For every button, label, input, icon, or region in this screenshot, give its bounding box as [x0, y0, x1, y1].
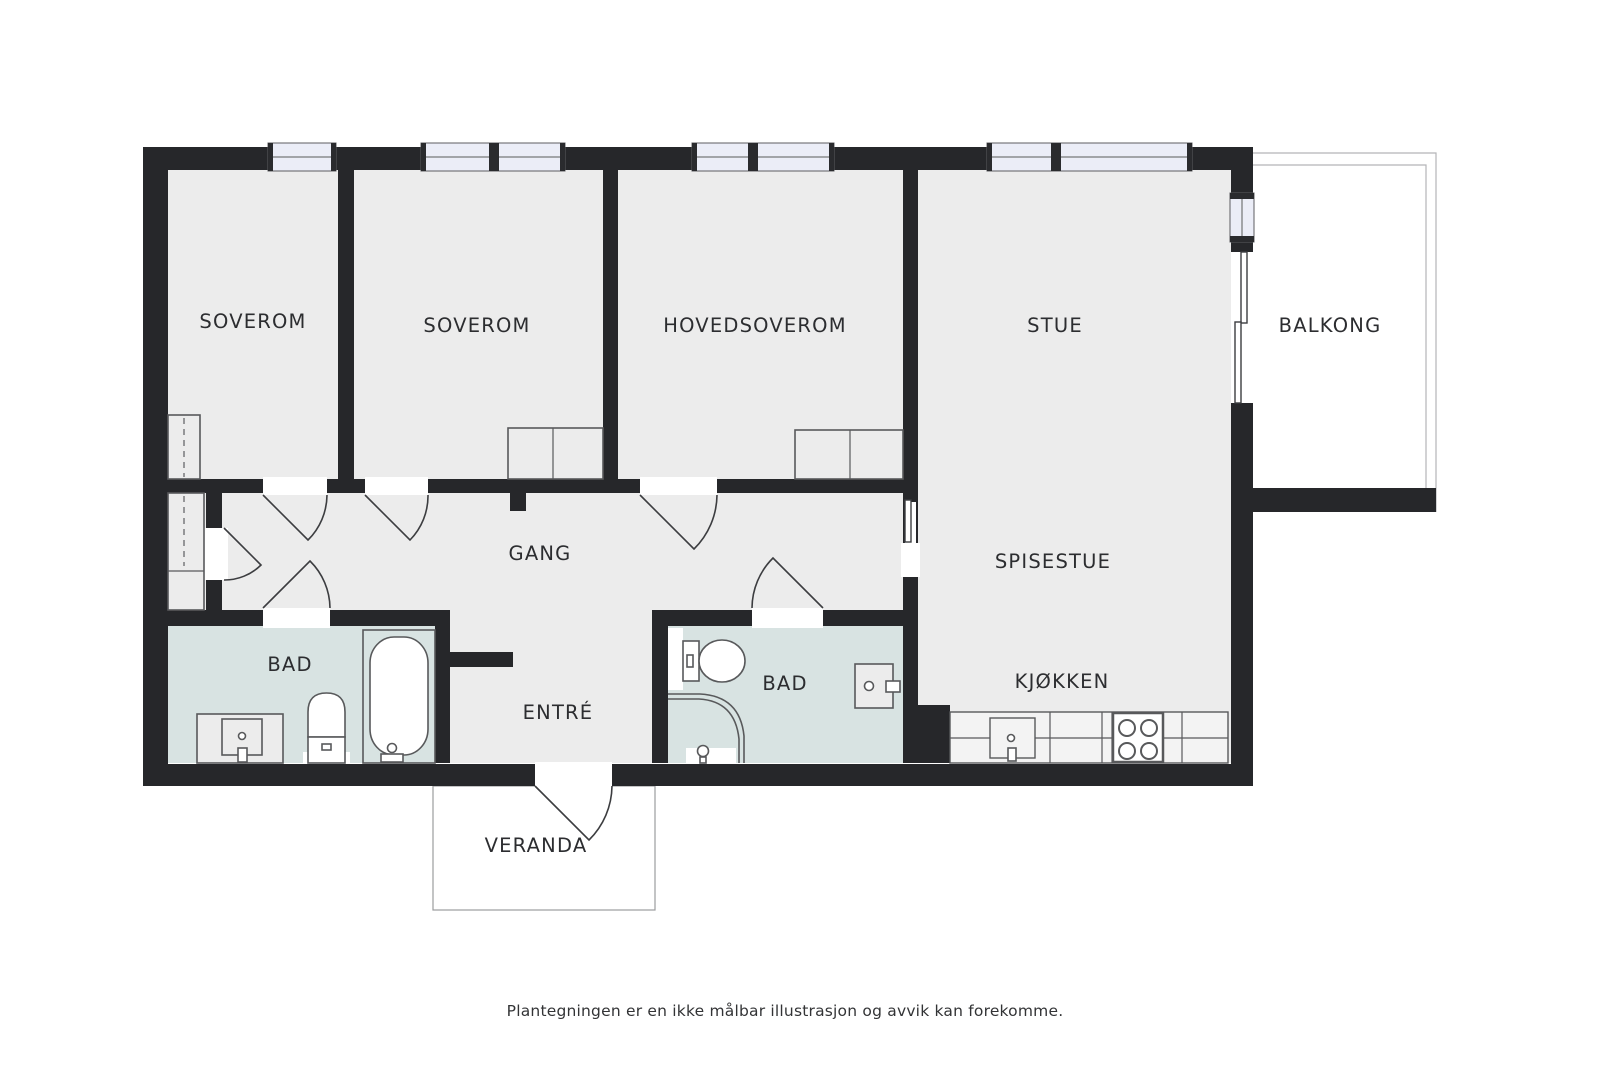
closet-icon: [168, 493, 204, 610]
kitchen-counter: [950, 712, 1228, 763]
stove-icon: [1113, 713, 1163, 762]
room-label-hovedsoverom: HOVEDSOVEROM: [663, 314, 847, 337]
vanity-sink-icon: [197, 714, 283, 763]
balcony-sliding-door-icon: [1235, 252, 1247, 403]
room-label-kjokken: KJØKKEN: [1015, 670, 1110, 693]
room-label-soverom-1: SOVEROM: [199, 310, 306, 333]
kitchen-sink-icon: [990, 718, 1035, 761]
room-label-bad-1: BAD: [267, 653, 312, 676]
toilet-niche: [668, 628, 683, 690]
floor-plan: SOVEROM SOVEROM HOVEDSOVEROM STUE BALKON…: [0, 0, 1600, 1067]
toilet-icon: [683, 640, 745, 682]
floor-plan-page: SOVEROM SOVEROM HOVEDSOVEROM STUE BALKON…: [0, 0, 1600, 1067]
wardrobe-icon: [795, 430, 903, 479]
room-label-balkong: BALKONG: [1279, 314, 1382, 337]
wardrobe-icon: [168, 415, 200, 479]
room-label-gang: GANG: [509, 542, 572, 565]
wardrobe-icon: [508, 428, 603, 479]
window-icon: [987, 143, 1192, 171]
room-label-bad-2: BAD: [762, 672, 807, 695]
room-label-entre: ENTRÉ: [523, 701, 594, 724]
window-icon: [268, 143, 336, 171]
window-icon: [692, 143, 834, 171]
window-icon: [1230, 193, 1254, 242]
window-icon: [421, 143, 565, 171]
toilet-icon: [303, 693, 350, 763]
room-label-spisestue: SPISESTUE: [995, 550, 1111, 573]
room-label-veranda: VERANDA: [485, 834, 588, 857]
bathtub-icon: [363, 630, 435, 763]
room-label-stue: STUE: [1027, 314, 1083, 337]
room-label-soverom-2: SOVEROM: [423, 314, 530, 337]
pocket-door-icon: [905, 500, 911, 542]
disclaimer-text: Plantegningen er en ikke målbar illustra…: [507, 1002, 1064, 1020]
wall-sink-icon: [855, 664, 900, 708]
